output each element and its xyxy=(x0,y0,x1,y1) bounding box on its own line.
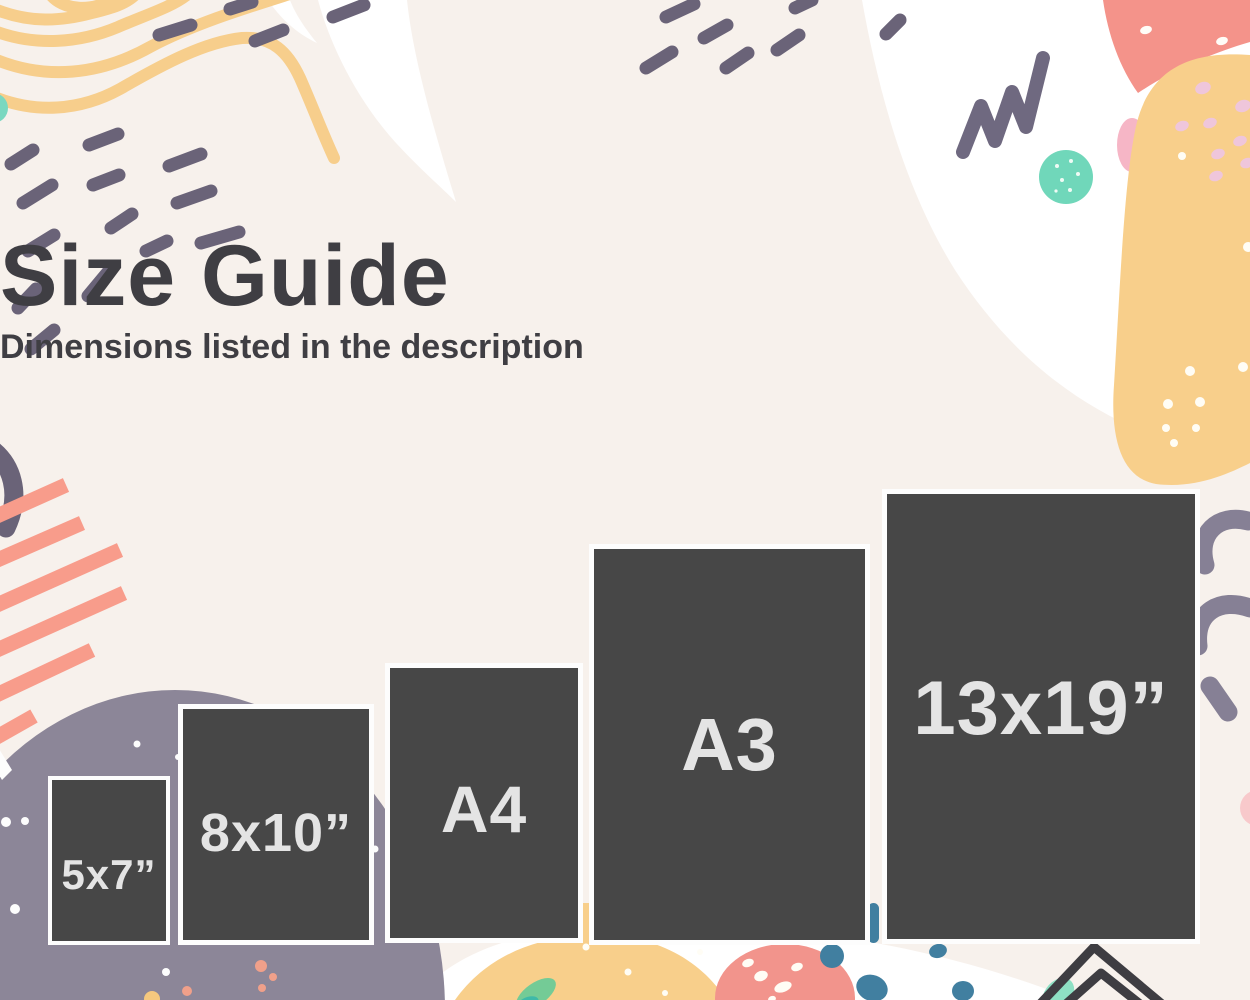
size-box-5x7: 5x7” xyxy=(48,776,170,945)
size-guide-graphic: Size Guide Dimensions listed in the desc… xyxy=(0,0,1250,1000)
page-subtitle: Dimensions listed in the description xyxy=(0,329,1250,365)
size-box-a4: A4 xyxy=(385,663,583,943)
page-title: Size Guide xyxy=(0,232,1250,320)
size-label-8x10: 8x10” xyxy=(200,802,352,864)
teal-circle xyxy=(1039,150,1093,204)
size-label-13x19: 13x19” xyxy=(913,665,1168,752)
size-label-5x7: 5x7” xyxy=(61,851,156,899)
size-label-a4: A4 xyxy=(441,771,527,847)
size-box-13x19: 13x19” xyxy=(882,489,1200,944)
size-label-a3: A3 xyxy=(681,702,778,787)
size-box-a3: A3 xyxy=(589,544,870,945)
size-box-8x10: 8x10” xyxy=(178,704,374,945)
